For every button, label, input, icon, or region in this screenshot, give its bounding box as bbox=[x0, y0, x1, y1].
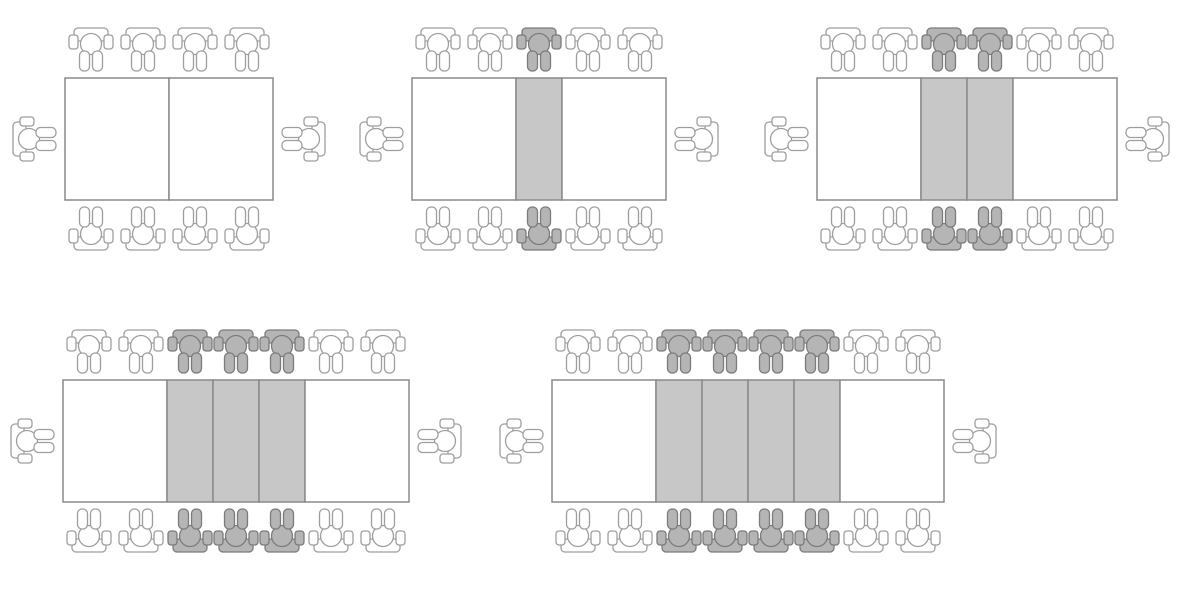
table-figure-svg bbox=[3, 22, 335, 256]
table-figure-svg bbox=[490, 324, 1006, 558]
person-on-chair-icon bbox=[749, 509, 793, 552]
table-leaf-section bbox=[921, 78, 967, 200]
person-on-chair-icon bbox=[795, 509, 839, 552]
arrangement-figure-3 bbox=[755, 22, 1179, 261]
table-section-white bbox=[412, 78, 516, 200]
person-on-chair-icon bbox=[168, 509, 212, 552]
table-leaf-section bbox=[702, 380, 748, 502]
table-leaf-section bbox=[259, 380, 305, 502]
person-on-chair-icon bbox=[500, 419, 543, 463]
person-on-chair-icon bbox=[922, 207, 966, 250]
table-leaf-section bbox=[167, 380, 213, 502]
person-on-chair-icon bbox=[214, 509, 258, 552]
table-section-white bbox=[169, 78, 273, 200]
table-leaf-section bbox=[748, 380, 794, 502]
arrangement-figure-1 bbox=[3, 22, 335, 261]
person-on-chair-icon bbox=[168, 330, 212, 373]
table-figure-svg bbox=[755, 22, 1179, 256]
person-on-chair-icon bbox=[566, 207, 610, 250]
person-on-chair-icon bbox=[618, 207, 662, 250]
person-on-chair-icon bbox=[1017, 28, 1061, 71]
person-on-chair-icon bbox=[1126, 117, 1169, 161]
person-on-chair-icon bbox=[121, 207, 165, 250]
person-on-chair-icon bbox=[844, 509, 888, 552]
person-on-chair-icon bbox=[675, 117, 718, 161]
person-on-chair-icon bbox=[260, 330, 304, 373]
person-on-chair-icon bbox=[749, 330, 793, 373]
person-on-chair-icon bbox=[896, 509, 940, 552]
person-on-chair-icon bbox=[618, 28, 662, 71]
person-on-chair-icon bbox=[556, 330, 600, 373]
person-on-chair-icon bbox=[13, 117, 56, 161]
person-on-chair-icon bbox=[703, 509, 747, 552]
person-on-chair-icon bbox=[795, 330, 839, 373]
person-on-chair-icon bbox=[360, 117, 403, 161]
person-on-chair-icon bbox=[517, 28, 561, 71]
table-leaf-section bbox=[967, 78, 1013, 200]
person-on-chair-icon bbox=[468, 28, 512, 71]
table-leaf-section bbox=[516, 78, 562, 200]
person-on-chair-icon bbox=[69, 28, 113, 71]
person-on-chair-icon bbox=[1017, 207, 1061, 250]
person-on-chair-icon bbox=[121, 28, 165, 71]
person-on-chair-icon bbox=[260, 509, 304, 552]
person-on-chair-icon bbox=[214, 330, 258, 373]
person-on-chair-icon bbox=[517, 207, 561, 250]
arrangement-figure-2 bbox=[350, 22, 728, 261]
person-on-chair-icon bbox=[282, 117, 325, 161]
table-section-white bbox=[562, 78, 666, 200]
person-on-chair-icon bbox=[173, 207, 217, 250]
person-on-chair-icon bbox=[416, 207, 460, 250]
person-on-chair-icon bbox=[119, 330, 163, 373]
table-section-white bbox=[65, 78, 169, 200]
person-on-chair-icon bbox=[69, 207, 113, 250]
person-on-chair-icon bbox=[821, 28, 865, 71]
table-section-white bbox=[552, 380, 656, 502]
person-on-chair-icon bbox=[566, 28, 610, 71]
person-on-chair-icon bbox=[873, 207, 917, 250]
person-on-chair-icon bbox=[225, 28, 269, 71]
person-on-chair-icon bbox=[1069, 207, 1113, 250]
person-on-chair-icon bbox=[67, 330, 111, 373]
person-on-chair-icon bbox=[922, 28, 966, 71]
person-on-chair-icon bbox=[821, 207, 865, 250]
person-on-chair-icon bbox=[608, 509, 652, 552]
table-section-white bbox=[840, 380, 944, 502]
person-on-chair-icon bbox=[416, 28, 460, 71]
person-on-chair-icon bbox=[361, 330, 405, 373]
arrangement-figure-5 bbox=[490, 324, 1006, 563]
person-on-chair-icon bbox=[67, 509, 111, 552]
table-section-white bbox=[63, 380, 167, 502]
person-on-chair-icon bbox=[873, 28, 917, 71]
table-section-white bbox=[1013, 78, 1117, 200]
person-on-chair-icon bbox=[556, 509, 600, 552]
person-on-chair-icon bbox=[418, 419, 461, 463]
person-on-chair-icon bbox=[309, 330, 353, 373]
table-section-white bbox=[305, 380, 409, 502]
person-on-chair-icon bbox=[657, 330, 701, 373]
person-on-chair-icon bbox=[468, 207, 512, 250]
person-on-chair-icon bbox=[309, 509, 353, 552]
table-section-white bbox=[817, 78, 921, 200]
person-on-chair-icon bbox=[844, 330, 888, 373]
person-on-chair-icon bbox=[11, 419, 54, 463]
table-leaf-section bbox=[656, 380, 702, 502]
arrangement-figure-4 bbox=[1, 324, 471, 563]
person-on-chair-icon bbox=[361, 509, 405, 552]
person-on-chair-icon bbox=[657, 509, 701, 552]
table-figure-svg bbox=[350, 22, 728, 256]
person-on-chair-icon bbox=[119, 509, 163, 552]
person-on-chair-icon bbox=[968, 28, 1012, 71]
seating-pattern-diagram bbox=[0, 0, 1200, 594]
person-on-chair-icon bbox=[703, 330, 747, 373]
person-on-chair-icon bbox=[173, 28, 217, 71]
person-on-chair-icon bbox=[1069, 28, 1113, 71]
person-on-chair-icon bbox=[953, 419, 996, 463]
person-on-chair-icon bbox=[608, 330, 652, 373]
person-on-chair-icon bbox=[968, 207, 1012, 250]
person-on-chair-icon bbox=[896, 330, 940, 373]
person-on-chair-icon bbox=[765, 117, 808, 161]
table-leaf-section bbox=[794, 380, 840, 502]
table-figure-svg bbox=[1, 324, 471, 558]
person-on-chair-icon bbox=[225, 207, 269, 250]
table-leaf-section bbox=[213, 380, 259, 502]
